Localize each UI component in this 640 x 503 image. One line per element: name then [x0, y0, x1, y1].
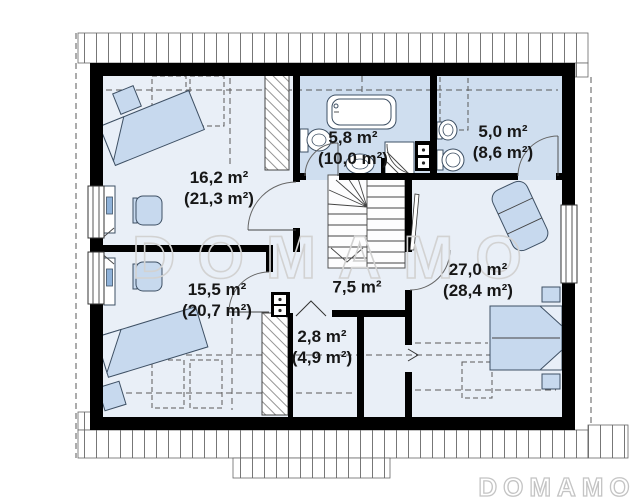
wc-sink-icon	[437, 120, 457, 140]
floor-plan: DOMAMO DOMAMO 16,2 m² (21,3 m²) 5,8 m² (…	[0, 0, 640, 503]
room-label-closet: 2,8 m² (4,9 m²)	[292, 326, 352, 368]
room-label-bathroom: 5,8 m² (10,0 m²)	[318, 127, 388, 169]
brand-logo: DOMAMO	[478, 472, 635, 502]
room-area: 2,8 m²	[292, 326, 352, 347]
bathtub-icon	[327, 95, 396, 129]
room-area-total: (4,9 m²)	[292, 347, 352, 368]
room-area: 27,0 m²	[443, 259, 513, 280]
room-area-total: (21,3 m²)	[184, 188, 254, 209]
room-area: 16,2 m²	[184, 167, 254, 188]
room-area-total: (8,6 m²)	[473, 142, 533, 163]
room-area-total: (20,7 m²)	[182, 300, 252, 321]
room-area-total: (10,0 m²)	[318, 148, 388, 169]
double-bed-icon	[490, 306, 562, 370]
room-label-hallway: 7,5 m²	[332, 277, 381, 298]
wc-toilet-icon	[437, 149, 464, 171]
office-chair-icon	[133, 196, 162, 225]
room-area: 7,5 m²	[332, 277, 381, 298]
room-label-bedroom-top-left: 16,2 m² (21,3 m²)	[184, 167, 254, 209]
room-label-bedroom-bottom-left: 15,5 m² (20,7 m²)	[182, 279, 252, 321]
room-area-total: (28,4 m²)	[443, 280, 513, 301]
room-label-wc: 5,0 m² (8,6 m²)	[473, 121, 533, 163]
room-area: 15,5 m²	[182, 279, 252, 300]
floor-plan-drawing: DOMAMO DOMAMO	[0, 0, 640, 503]
room-area: 5,8 m²	[318, 127, 388, 148]
room-area: 5,0 m²	[473, 121, 533, 142]
room-label-bedroom-right: 27,0 m² (28,4 m²)	[443, 259, 513, 301]
